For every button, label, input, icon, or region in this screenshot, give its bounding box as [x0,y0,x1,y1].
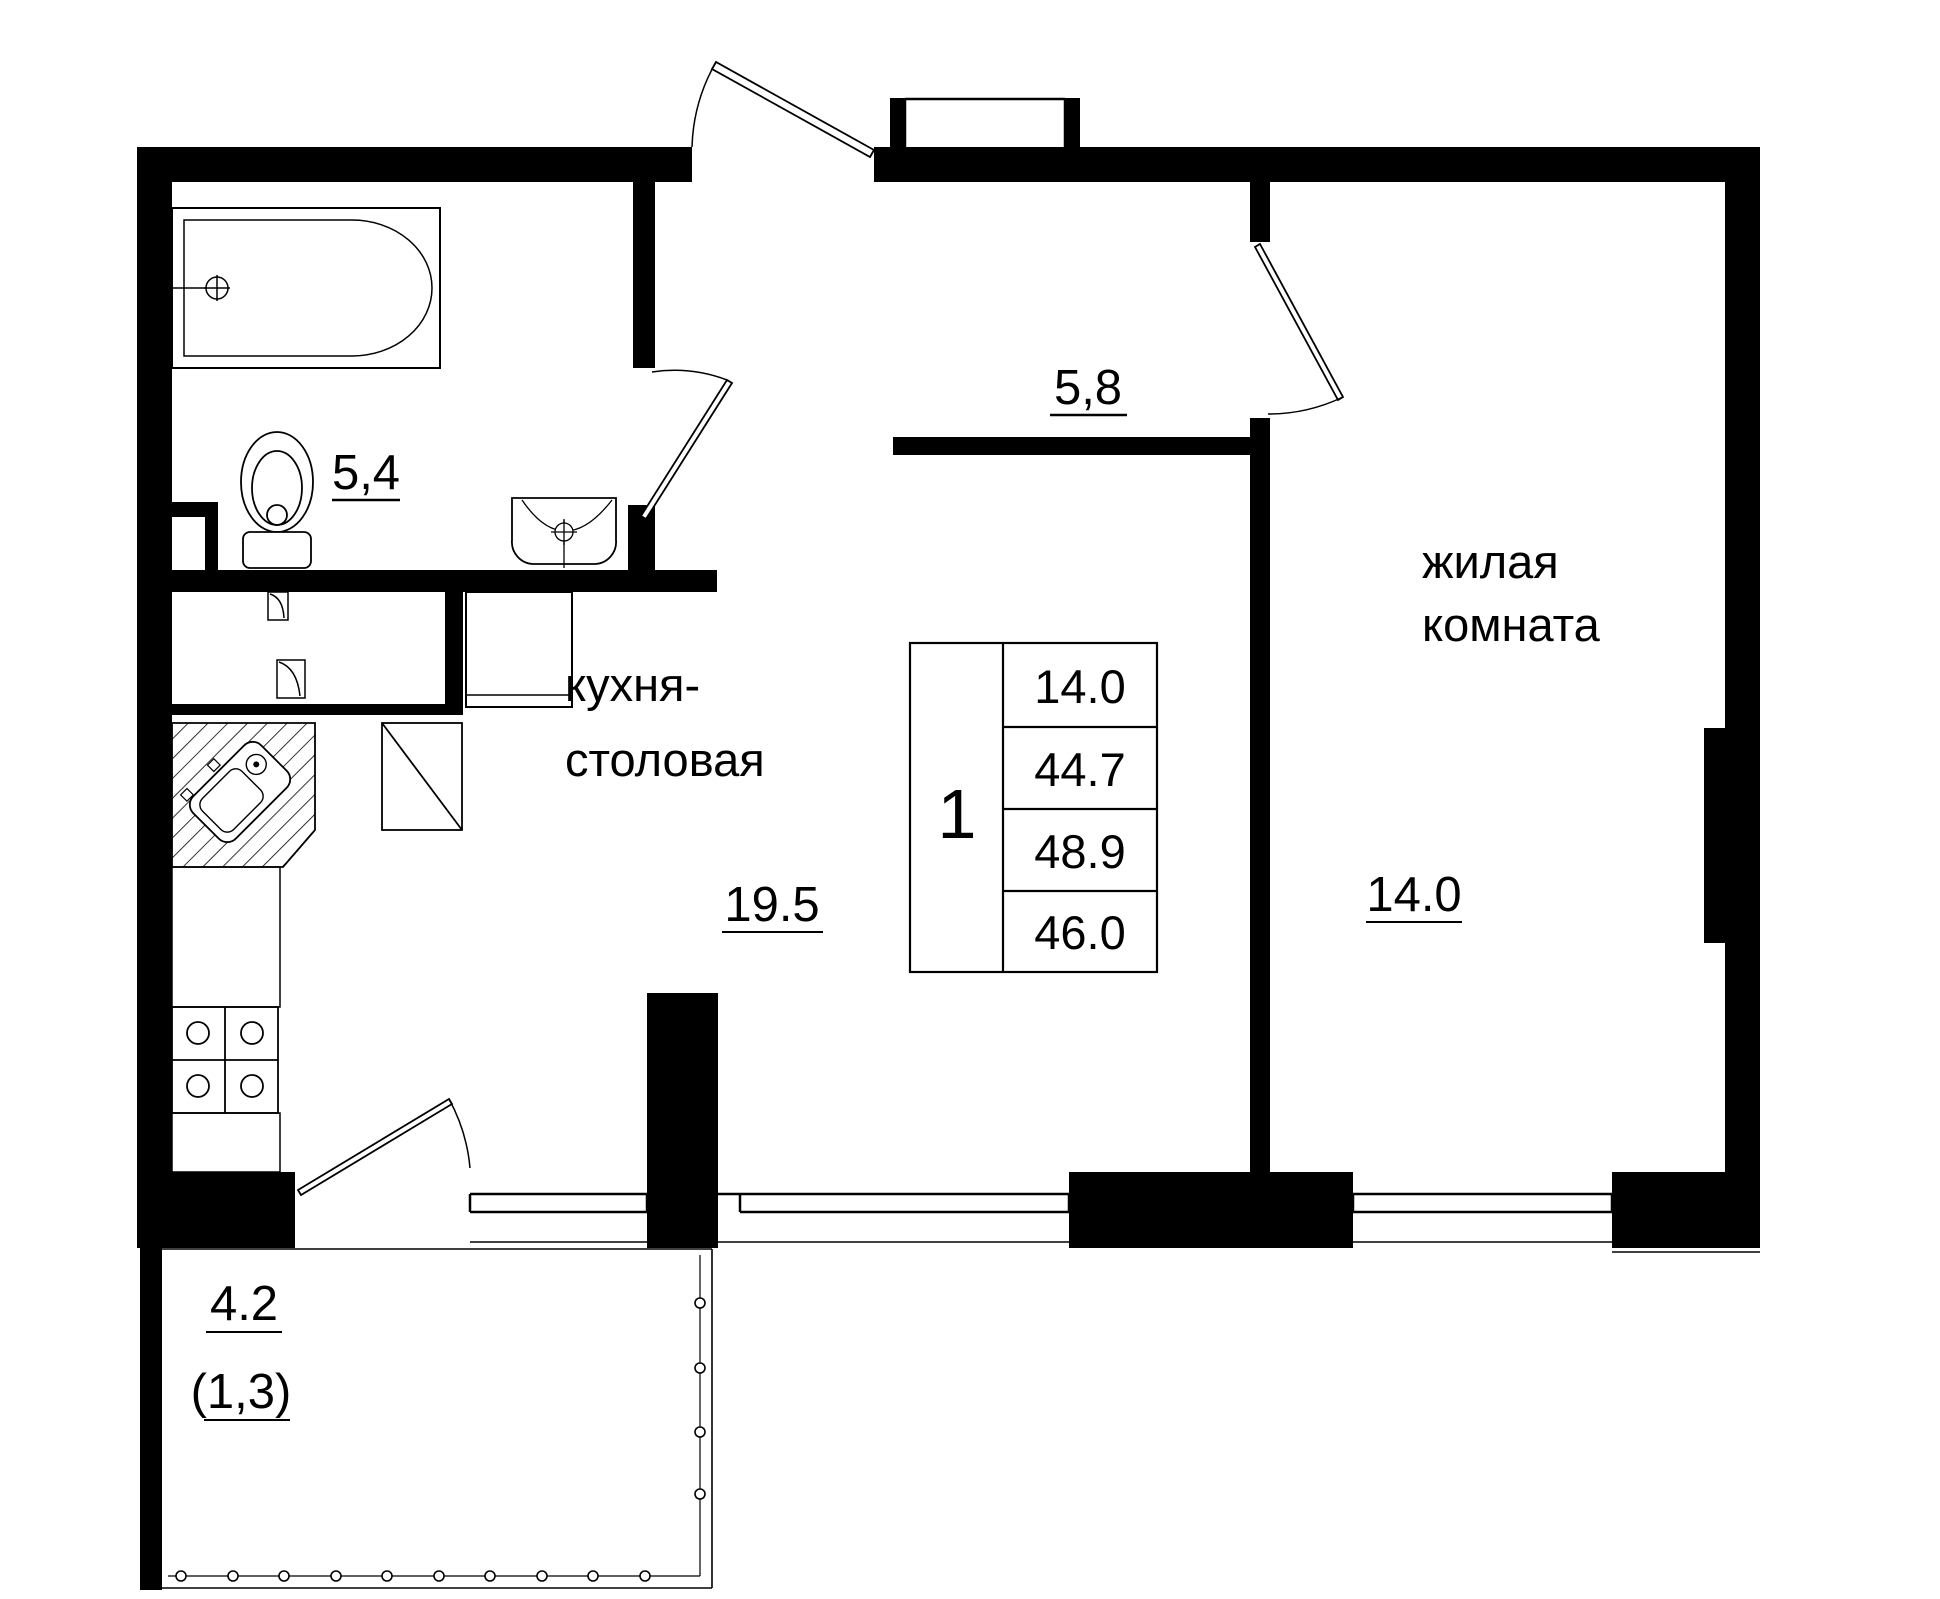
panel-large-icon [277,660,305,698]
wall-panel-icons [268,592,305,698]
kitchen-name-line2: столовая [565,733,765,786]
wall-bottom-2 [1069,1172,1353,1248]
table-value-2: 44.7 [1034,743,1125,796]
wall-right-pilaster [1704,728,1727,943]
balcony-door-arc [449,1099,470,1168]
balcony-area-label: 4.2 [210,1277,278,1331]
wall-niche-stub-left [890,98,905,147]
wall-bathroom-notch-h [172,502,218,517]
table-rooms-count: 1 [938,775,977,853]
table-value-3: 48.9 [1034,825,1125,878]
kitchen-area-label: 19.5 [724,878,819,932]
bathroom-door-leaf [641,380,732,519]
balcony-area-coefficient-label: (1,3) [191,1365,292,1419]
living-room-door-leaf [1255,244,1343,400]
living-room-area-label: 14.0 [1366,868,1461,922]
wall-balcony-left [140,1248,162,1590]
bathroom-door-arc [652,370,727,380]
wall-top-right [874,147,1760,182]
wall-bathroom-bottom [137,570,717,592]
table-value-living-area: 14.0 [1034,660,1125,713]
dining-window [718,1194,1069,1242]
stove-icon [172,1007,278,1113]
room-labels: 5,4 5,8 кухня- столовая 19.5 жилая комна… [191,361,1601,1420]
living-room-door-arc [1268,397,1343,414]
entrance-door-arc [692,62,716,147]
hallway-area-label: 5,8 [1054,361,1122,415]
wall-bottom-3 [1612,1172,1760,1248]
living-room-name-line2: комната [1422,598,1601,651]
balcony-door [298,1099,470,1195]
wall-bathroom-notch-v [205,517,218,570]
bathroom-area-label: 5,4 [332,446,400,500]
kitchen-name-line1: кухня- [565,658,700,711]
entrance-door-leaf [712,62,874,157]
table-value-4: 46.0 [1034,906,1125,959]
fridge-icon [466,592,572,707]
wall-nook-right [445,592,463,715]
wall-top-left [137,147,692,182]
kitchen-window [470,1194,647,1242]
wall-bottom-1 [137,1172,295,1248]
entrance-niche [905,99,1065,147]
wall-bottom-pillar [647,993,718,1248]
bathroom-sink-icon [512,498,616,568]
bathtub-icon [172,208,440,368]
wall-niche-stub-right [1065,98,1080,147]
bathroom-door [641,370,732,519]
counter-strip [172,867,280,1007]
wall-right [1725,147,1760,1248]
counter-strip-lower [172,1113,280,1172]
wall-bathroom-right [633,182,655,368]
toilet-icon [241,432,313,568]
kitchen-corner-sink-icon [172,723,315,867]
entrance-door [692,62,874,157]
wall-partition-living [1250,455,1270,1172]
info-table: 1 14.0 44.7 48.9 46.0 [910,643,1157,972]
wall-hall-kitchen [893,437,1270,455]
wall-nook-bottom [137,704,463,715]
living-room-door [1255,244,1343,414]
balcony-door-leaf [298,1099,452,1195]
wall-left [137,147,172,1248]
living-room-name-line1: жилая [1422,535,1559,588]
floor-plan: 1 14.0 44.7 48.9 46.0 5,4 5,8 кухня- сто… [0,0,1940,1599]
wall-hall-stub [1250,418,1270,437]
wall-living-door-stub [1250,182,1270,242]
panel-small-icon [268,592,288,620]
